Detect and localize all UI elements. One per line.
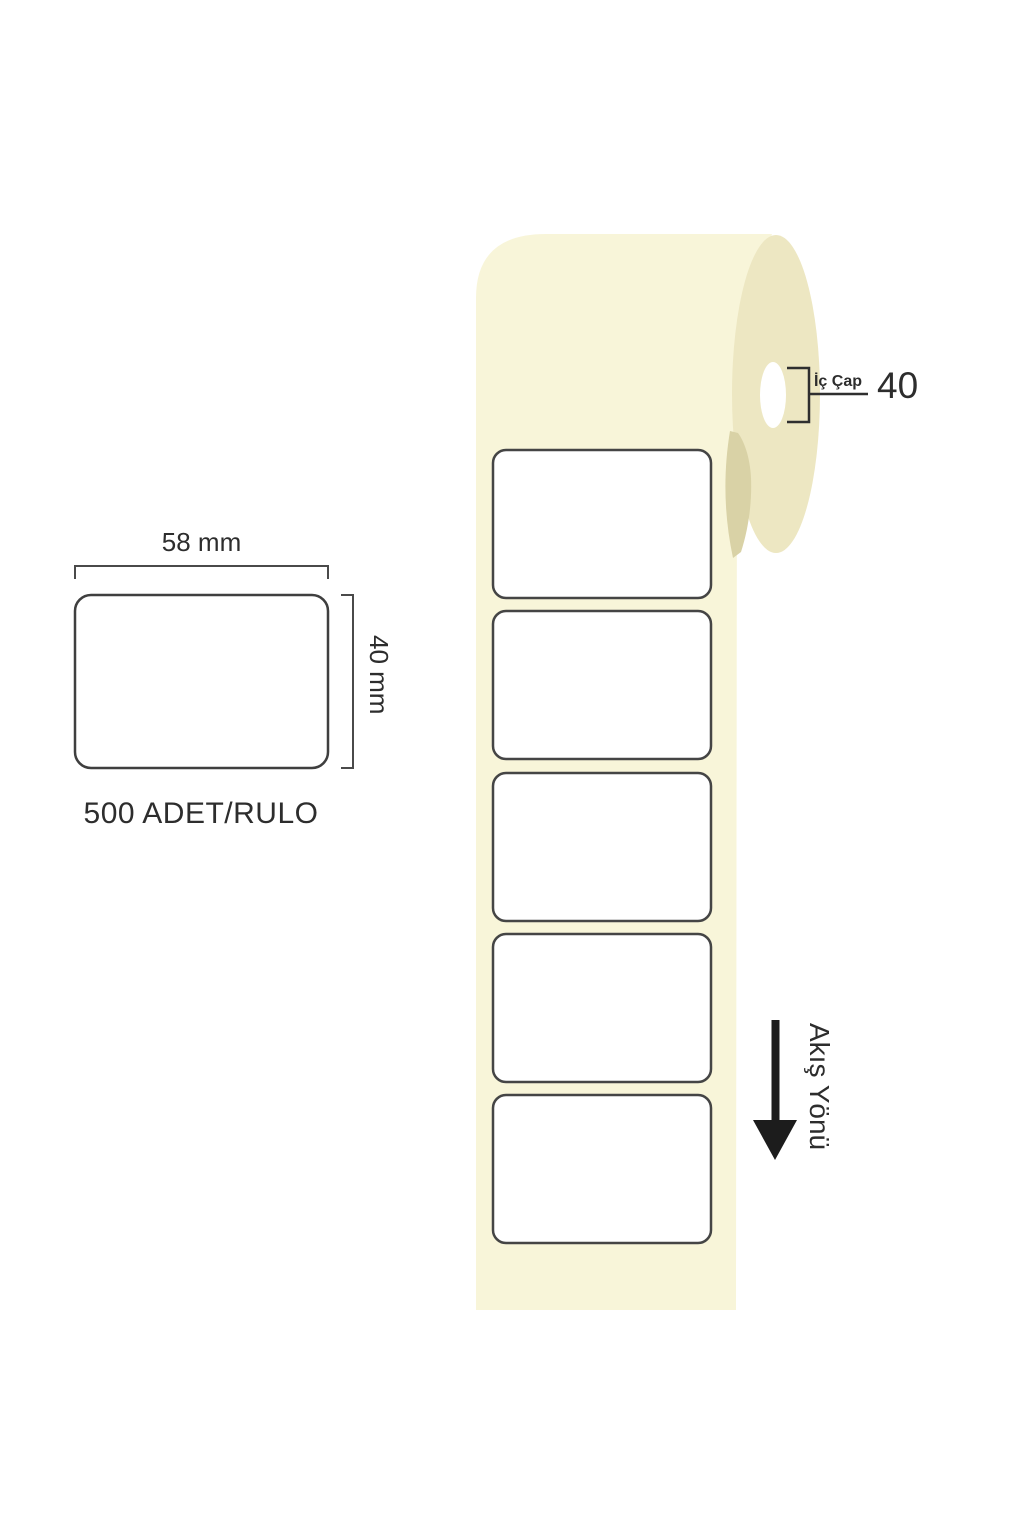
width-dimension-line <box>75 566 328 579</box>
strip-labels <box>493 450 711 1243</box>
strip-label-4 <box>493 934 711 1082</box>
label-roll-diagram: 58 mm 40 mm 500 ADET/RULO İç Çap 40 Akış… <box>0 0 1024 1536</box>
strip-label-3 <box>493 773 711 921</box>
single-label-outline <box>75 595 328 768</box>
core-diameter-value: 40 <box>877 366 918 406</box>
flow-direction-text: Akış Yönü <box>803 1023 836 1163</box>
label-width-text: 58 mm <box>75 527 328 557</box>
strip-label-5 <box>493 1095 711 1243</box>
roll-core-hole <box>760 362 786 428</box>
label-height-text: 40 mm <box>364 635 394 725</box>
flow-arrow-shaft <box>772 1020 780 1122</box>
height-dimension-line <box>341 595 353 768</box>
core-diameter-label: İç Çap <box>809 372 867 391</box>
diagram-shapes <box>0 0 1024 1536</box>
strip-label-2 <box>493 611 711 759</box>
flow-arrow <box>753 1020 797 1160</box>
per-roll-count-text: 500 ADET/RULO <box>55 798 347 830</box>
strip-label-1 <box>493 450 711 598</box>
flow-arrow-head <box>753 1120 797 1160</box>
